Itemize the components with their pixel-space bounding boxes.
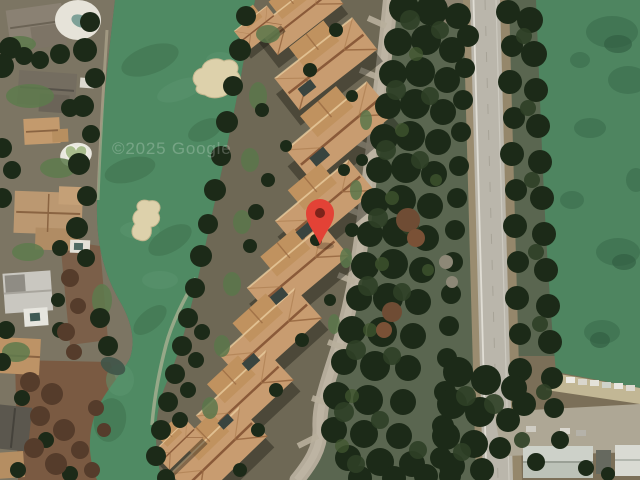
house — [2, 270, 53, 313]
building — [615, 445, 640, 476]
map-viewport: ©2025 Google — [0, 0, 640, 480]
satellite-map[interactable]: ©2025 Google — [0, 0, 640, 480]
pin-inner-dot — [315, 208, 325, 218]
pool — [30, 313, 41, 322]
map-attribution: ©2025 Google — [112, 139, 232, 158]
